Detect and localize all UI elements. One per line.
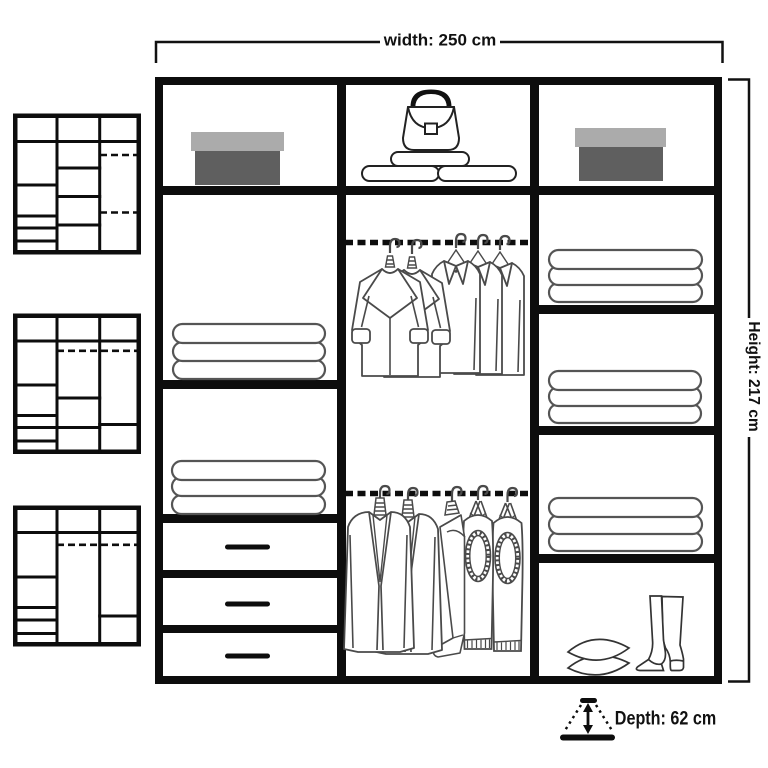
svg-text:width: 250 cm: width: 250 cm [383,31,496,50]
svg-text:Height: 217 cm: Height: 217 cm [745,321,762,431]
svg-text:Depth: 62 cm: Depth: 62 cm [615,707,716,729]
